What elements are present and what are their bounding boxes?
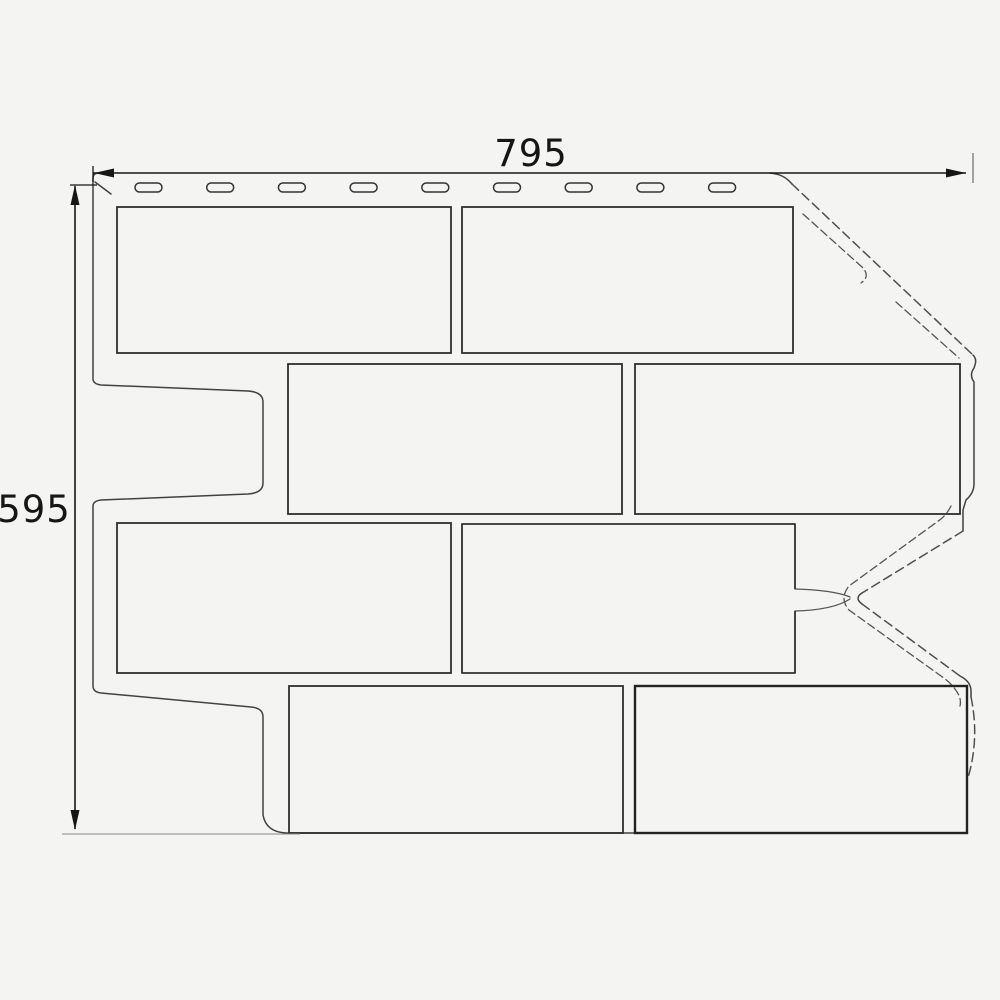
- v-arrow-top: [71, 185, 80, 205]
- diagonal-inner-line-lower: [896, 302, 959, 358]
- panel-diagonal-cut-edge: [792, 184, 973, 355]
- panel-outline: [93, 173, 976, 833]
- brick-pattern: [117, 207, 967, 833]
- nail-slot: [637, 183, 664, 192]
- brick: [288, 364, 622, 514]
- panel-inner-detail-lines: [803, 214, 960, 706]
- nail-slot: [350, 183, 377, 192]
- h-arrow-left: [94, 169, 114, 178]
- dimension-vertical: 595: [0, 185, 300, 834]
- nail-slot: [709, 183, 736, 192]
- h-arrow-right: [946, 169, 966, 178]
- nail-slot: [494, 183, 521, 192]
- nail-slot: [422, 183, 449, 192]
- brick: [117, 207, 451, 353]
- v-notch-inner-line: [844, 506, 960, 706]
- brick: [117, 523, 451, 673]
- panel-top-step-edge: [770, 173, 792, 184]
- v-arrow-bottom: [71, 810, 80, 830]
- drawing-canvas: 795 595: [0, 0, 1000, 1000]
- panel-corner-chamfer-line: [95, 182, 111, 194]
- nail-slot: [565, 183, 592, 192]
- height-dimension-label: 595: [0, 488, 71, 531]
- v-notch-channel: [795, 589, 850, 611]
- panel-v-notch-vertex: [858, 593, 862, 604]
- brick-row3-right-with-gap: [462, 524, 795, 673]
- panel-right-edge-upper: [963, 355, 976, 531]
- brick: [635, 686, 967, 833]
- nail-slot: [278, 183, 305, 192]
- channel-bottom-line: [795, 599, 850, 611]
- nail-slot: [207, 183, 234, 192]
- brick: [635, 364, 960, 514]
- nail-slots: [135, 183, 736, 192]
- width-dimension-label: 795: [494, 132, 568, 175]
- brick: [289, 686, 623, 833]
- facade-panel-drawing: 795 595: [0, 0, 1000, 1000]
- panel-v-notch-lower-edge: [862, 604, 960, 676]
- panel-left-bottom-edge: [93, 173, 967, 833]
- brick: [462, 207, 793, 353]
- channel-top-line: [795, 589, 850, 597]
- dimension-horizontal: 795: [93, 132, 973, 183]
- nail-slot: [135, 183, 162, 192]
